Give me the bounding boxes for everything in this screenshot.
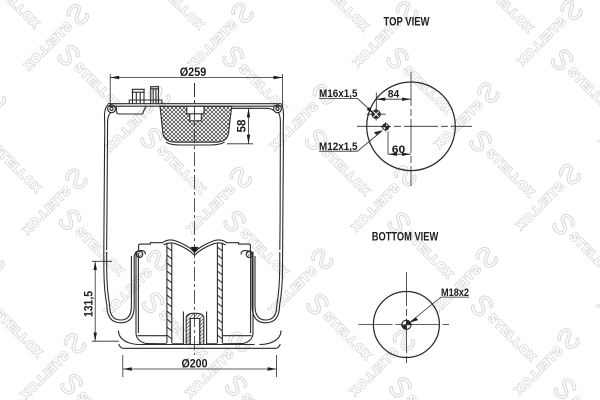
svg-text:TOP VIEW: TOP VIEW	[384, 15, 431, 29]
svg-text:84: 84	[388, 89, 400, 101]
svg-text:60: 60	[392, 144, 406, 156]
svg-text:BOTTOM VIEW: BOTTOM VIEW	[372, 229, 439, 243]
svg-text:Ø200: Ø200	[182, 358, 208, 371]
svg-text:131,5: 131,5	[83, 291, 96, 317]
svg-text:58: 58	[235, 119, 248, 133]
svg-text:Ø259: Ø259	[180, 66, 207, 79]
